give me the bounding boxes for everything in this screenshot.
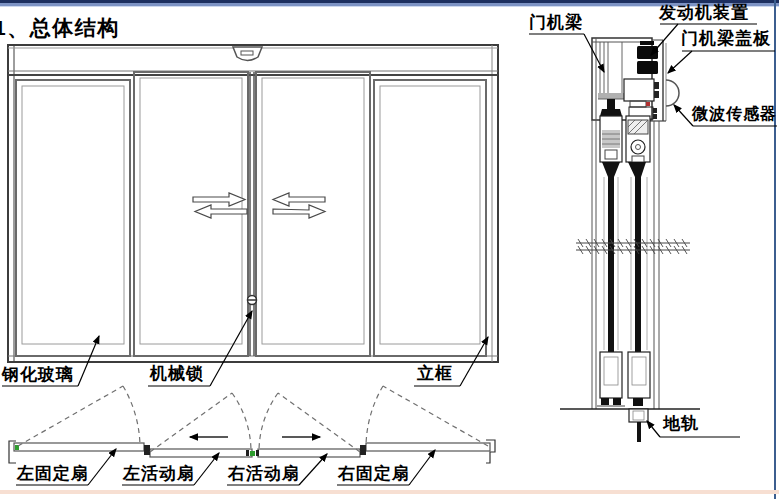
label-beam-cover: 门机梁盖板 [681,29,771,49]
slide-direction-arrows-icon [193,193,325,218]
label-left-sliding-panel: 左活动扇 [123,464,195,484]
motor-block [637,41,658,74]
microwave-sensor-bump [666,80,679,106]
section-view-drawing [529,24,777,442]
label-mechanical-lock: 机械锁 [150,364,204,384]
gearbox-unit [624,79,659,119]
mechanical-lock-icon [248,296,257,305]
label-left-fixed-panel: 左固定扇 [17,464,89,484]
label-door-operator-beam: 门机梁 [529,13,583,33]
slide-canvas: 1、总体结构 钢化玻璃 机械锁 立框 门机梁 发动机装置 门机梁盖板 微波传感器… [0,0,779,499]
label-floor-track: 地轨 [663,414,699,434]
label-right-fixed-panel: 右固定扇 [338,464,410,484]
break-line [576,239,690,254]
elevation-leader-lines [2,311,488,386]
floor-track-symbol [629,409,648,442]
left-hanger-carriage [600,99,622,162]
label-motor-unit: 发动机装置 [659,3,749,23]
front-elevation-drawing [2,45,498,386]
label-vertical-frame: 立框 [417,364,453,384]
sensor-dome [233,47,262,61]
door-panel-left-fixed [16,80,130,356]
swing-arcs [18,386,488,452]
slide-title: 1、总体结构 [0,16,120,40]
door-panel-right-fixed [374,80,486,356]
label-right-sliding-panel: 右活动扇 [228,464,300,484]
label-microwave-sensor: 微波传感器 [692,104,777,124]
operator-rail [598,42,626,99]
label-tempered-glass: 钢化玻璃 [2,365,74,385]
right-hanger-carriage [626,116,650,162]
bottom-carriages [597,352,650,406]
